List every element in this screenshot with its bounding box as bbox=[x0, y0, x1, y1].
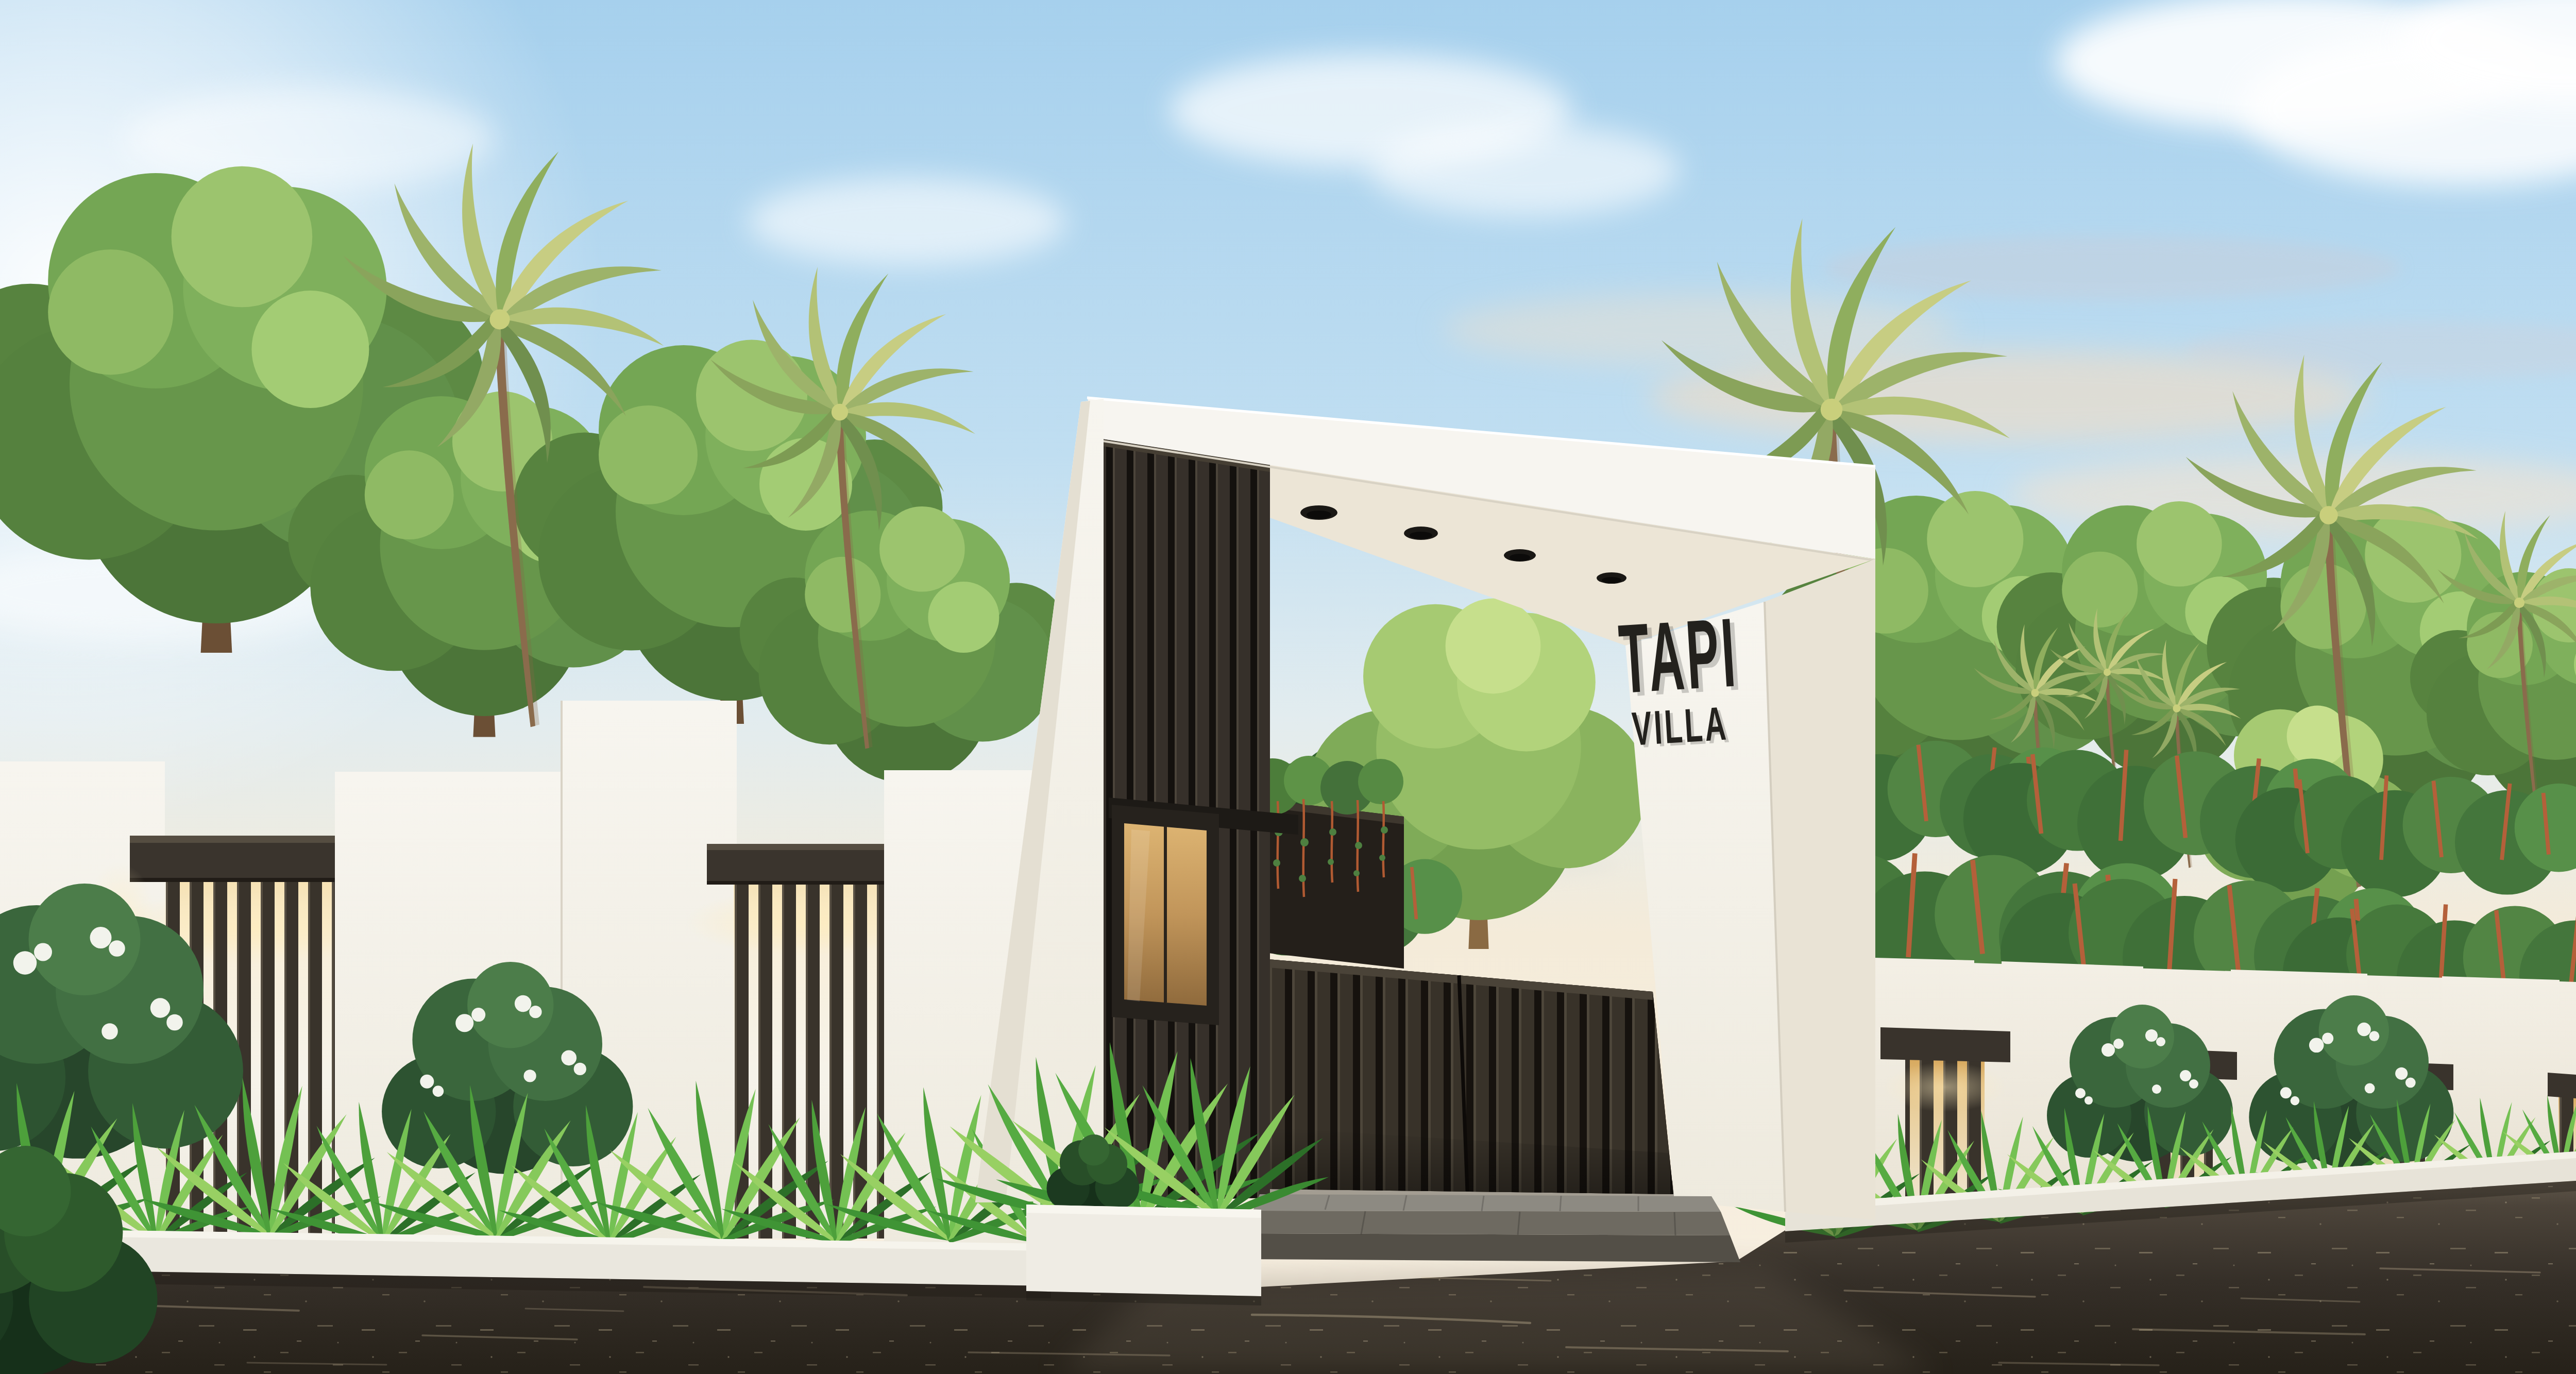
gate-planter-box bbox=[1026, 1205, 1261, 1296]
downlight-3 bbox=[1504, 549, 1536, 562]
downlight-2 bbox=[1404, 527, 1438, 540]
gate-sign: TAPI TAPI VILLA VILLA bbox=[1616, 597, 1745, 758]
header-cap-right-1 bbox=[1880, 1027, 2010, 1062]
sign-line2: VILLA bbox=[1631, 697, 1730, 755]
header-cap-right-4 bbox=[2548, 1073, 2576, 1098]
gate-door bbox=[1268, 959, 1673, 1194]
entry-steps bbox=[1241, 1194, 1740, 1262]
villa-entrance-render: TAPI TAPI VILLA VILLA bbox=[0, 0, 2576, 1374]
sign-line1: TAPI bbox=[1616, 597, 1741, 714]
wall-panel-r4 bbox=[2442, 976, 2560, 1163]
downlight-4 bbox=[1597, 572, 1626, 584]
downlight-1 bbox=[1300, 505, 1337, 520]
